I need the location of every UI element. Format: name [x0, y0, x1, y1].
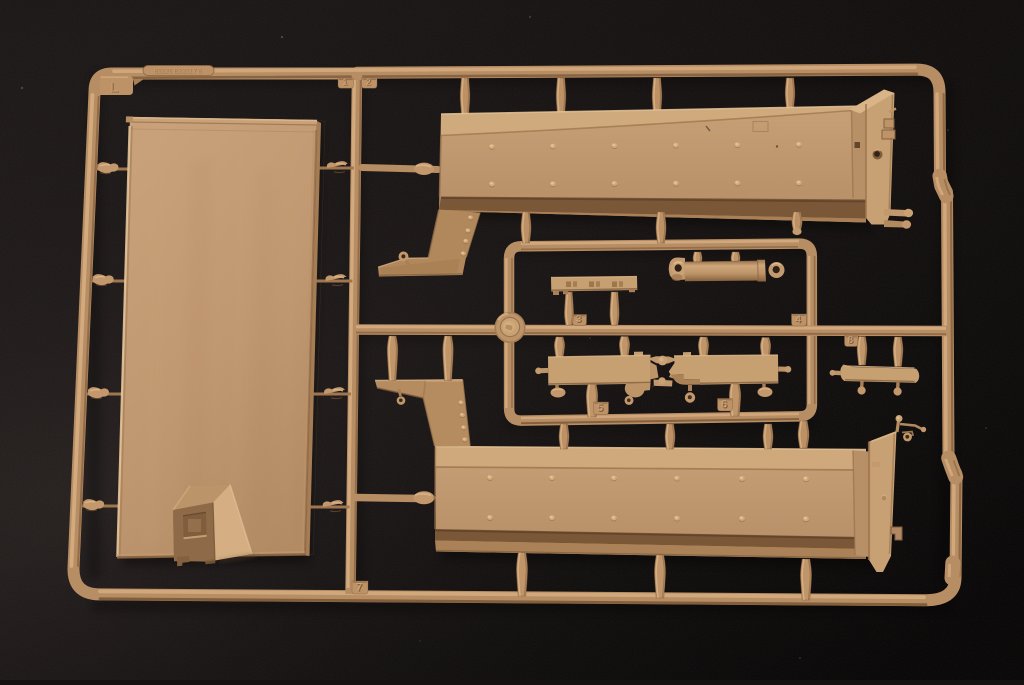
- svg-text:7: 7: [356, 582, 362, 594]
- svg-text:2: 2: [366, 77, 371, 87]
- svg-text:1: 1: [342, 77, 347, 87]
- svg-text:83326 B33317 8: 83326 B33317 8: [154, 68, 202, 75]
- svg-text:3: 3: [576, 314, 582, 325]
- svg-text:8: 8: [848, 335, 854, 346]
- svg-text:L: L: [110, 79, 119, 95]
- svg-text:4: 4: [795, 315, 801, 326]
- svg-text:6: 6: [721, 399, 727, 411]
- svg-text:5: 5: [597, 402, 603, 414]
